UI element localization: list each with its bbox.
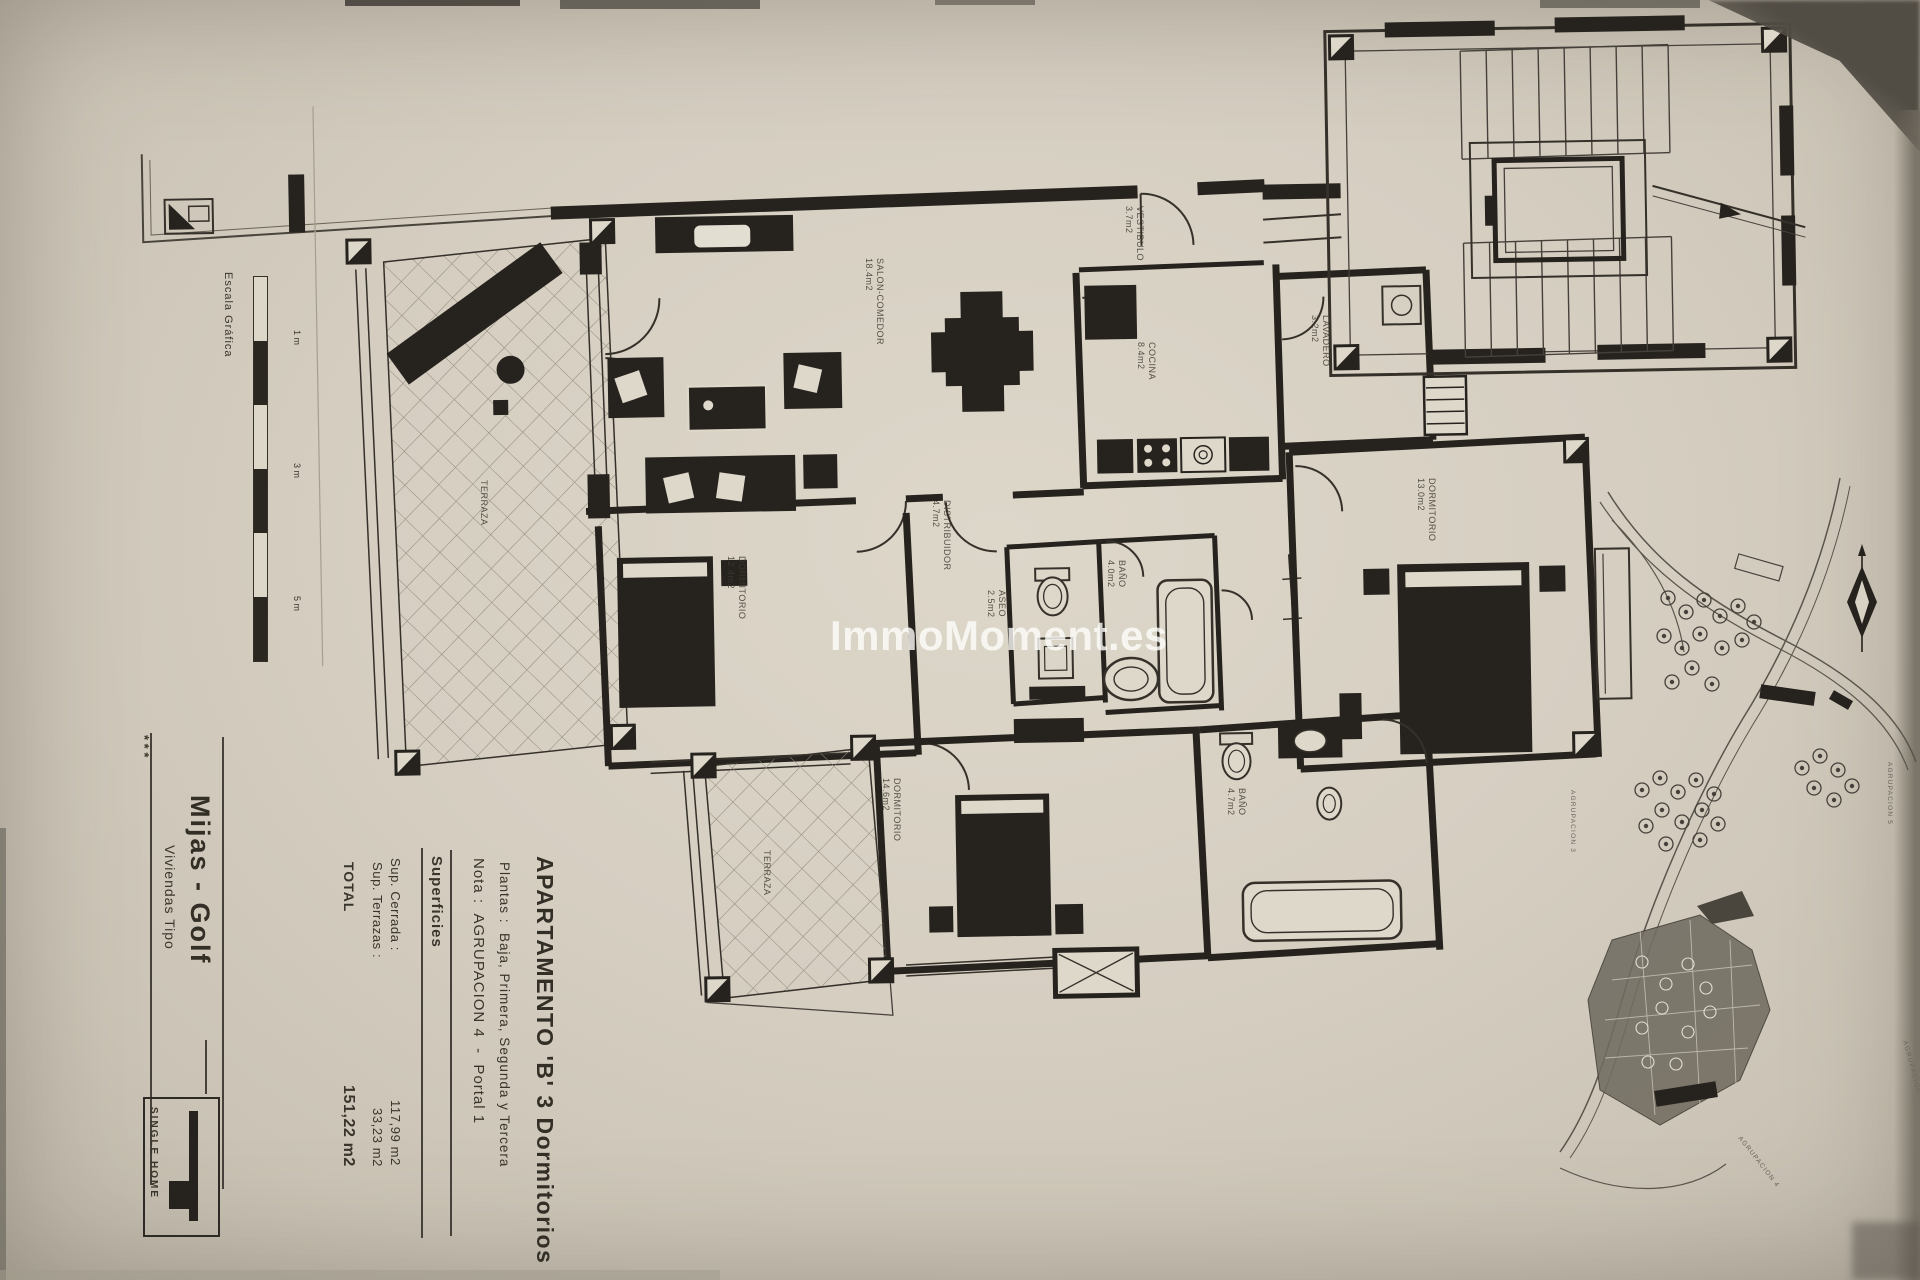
watermark: ImmoMoment.es <box>830 612 1168 660</box>
floorplan-sheet: { "watermark": "ImmoMoment.es", "title_b… <box>0 0 1920 1280</box>
highlighted-block <box>1588 891 1770 1125</box>
building-cluster-north <box>1657 591 1761 691</box>
building-cluster-middle <box>1635 771 1725 851</box>
north-arrow-icon <box>1847 544 1877 652</box>
building-cluster-east <box>1795 749 1859 807</box>
